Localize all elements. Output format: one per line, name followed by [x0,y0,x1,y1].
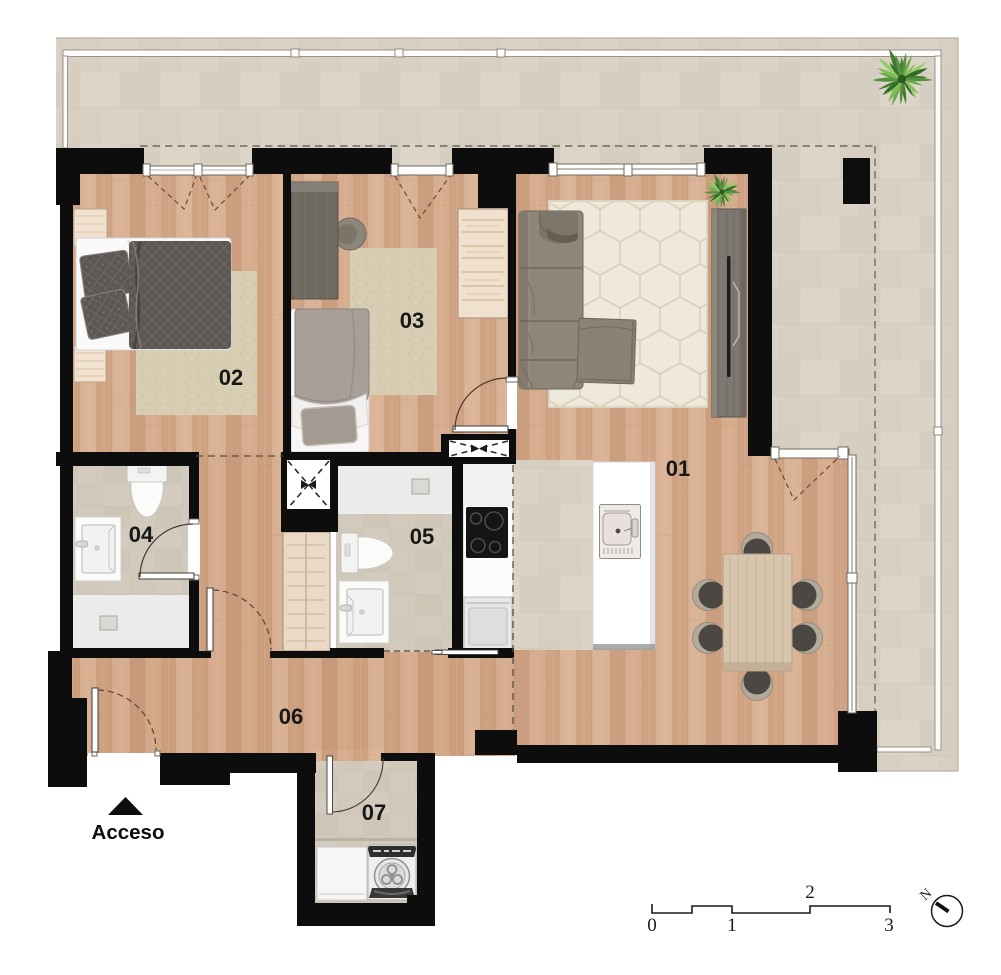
svg-text:04: 04 [129,522,154,547]
svg-text:06: 06 [279,704,303,729]
svg-text:01: 01 [666,456,690,481]
svg-text:3: 3 [884,915,894,936]
svg-text:2: 2 [805,882,815,903]
svg-text:1: 1 [727,915,737,936]
svg-text:07: 07 [362,800,386,825]
svg-text:03: 03 [400,308,424,333]
svg-text:Acceso: Acceso [92,821,165,844]
svg-text:02: 02 [219,365,243,390]
svg-text:05: 05 [410,524,434,549]
svg-text:0: 0 [647,915,657,936]
